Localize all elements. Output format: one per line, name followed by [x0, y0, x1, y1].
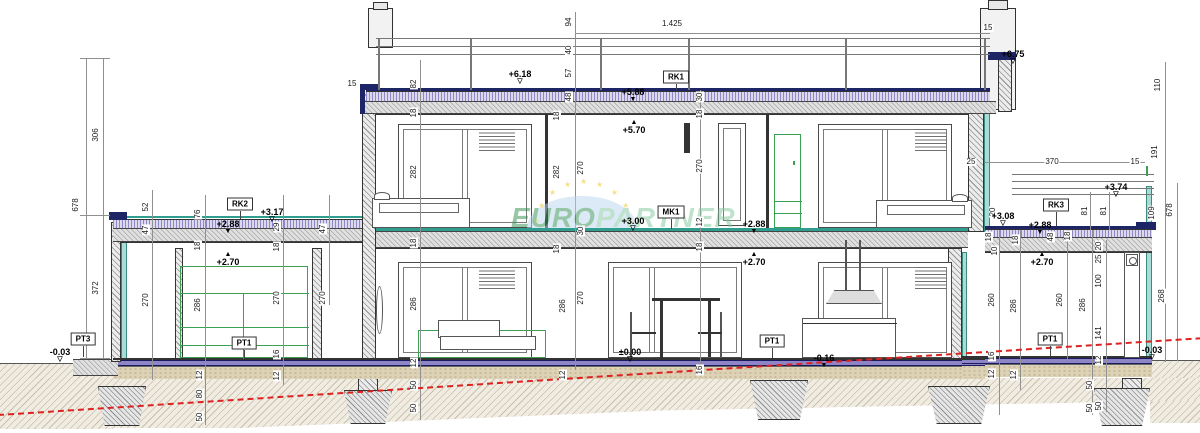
level-mark: ▲+2.70 — [1031, 252, 1054, 267]
dimension-label: 286 — [410, 296, 418, 311]
level-marker-icon: ▼ — [743, 229, 766, 235]
level-marker-icon: ▼ — [622, 97, 645, 103]
reference-box-rk2: RK2 — [227, 198, 253, 211]
dimension-label: 50 — [410, 380, 418, 391]
dimension-label: 47 — [319, 224, 327, 235]
dimension-label: 678 — [72, 197, 80, 212]
level-mark: +2.88▼ — [743, 220, 766, 235]
dimension-label: 82 — [410, 79, 418, 90]
reference-box-pt3: PT3 — [71, 333, 96, 346]
dimension-label: 282 — [553, 164, 561, 179]
dimension-label: 50 — [1095, 401, 1103, 412]
dimension-label: 16 — [696, 365, 704, 376]
dimension-label: 270 — [577, 290, 585, 305]
reference-box-pt1: PT1 — [760, 335, 785, 348]
dimension-label: 16 — [988, 351, 996, 362]
dimension-label: 15 — [983, 24, 994, 32]
dimension-label: 18 — [696, 242, 704, 253]
dimension-label: 110 — [1154, 78, 1162, 93]
dimension-label: 29 — [273, 222, 281, 233]
leader-line — [676, 84, 677, 90]
dimension-label: 286 — [194, 297, 202, 312]
dimension-label: 16 — [273, 349, 281, 360]
dimension-label: 18 — [273, 242, 281, 253]
dimension-label: 100 — [1095, 273, 1103, 288]
dimension-label: 18 — [553, 111, 561, 122]
level-marker-icon: ▽ — [622, 226, 645, 232]
dimension-label: 52 — [142, 202, 150, 213]
leader-line — [83, 346, 84, 357]
dimension-label: 18 — [1012, 235, 1020, 246]
dimension-label: 306 — [92, 127, 100, 142]
level-mark: +6.18▽ — [509, 70, 532, 85]
level-mark: ▲+5.70 — [623, 120, 646, 135]
dimension-label: 270 — [696, 158, 704, 173]
level-marker-icon: ▽ — [992, 221, 1015, 227]
dimension-label: 40 — [565, 45, 573, 56]
dimension-label: 286 — [559, 298, 567, 313]
leader-line — [1056, 212, 1057, 226]
level-mark: ▲+2.70 — [217, 252, 240, 267]
level-marker-icon: ▼ — [1029, 230, 1052, 236]
level-mark: +6.75▽ — [1002, 50, 1025, 65]
dimension-label: 76 — [194, 209, 202, 220]
dimension-label: 141 — [1095, 325, 1103, 340]
level-marker-icon: ▽ — [1105, 192, 1128, 198]
reference-box-pt1: PT1 — [232, 337, 257, 350]
dimension-label: 25 — [1095, 254, 1103, 265]
dimension-label: 286 — [1010, 298, 1018, 313]
level-marker-icon: ▽ — [619, 357, 641, 363]
dimension-label: 20 — [1095, 241, 1103, 252]
dimension-label: 80 — [196, 389, 204, 400]
dimension-label: 10 — [991, 246, 999, 257]
dimension-label: 12 — [696, 217, 704, 228]
level-mark: -0.03▽ — [50, 348, 71, 363]
level-marker-icon: ▽ — [509, 79, 532, 85]
dimension-label: 109 — [1148, 205, 1156, 220]
cross-section-drawing: ★ ★ ★ ★ ★ ★ ★ ★ ★ EUROPARTNER 6783063725… — [0, 0, 1200, 433]
level-mark: +3.08▽ — [992, 212, 1015, 227]
dimension-label: 12 — [1010, 370, 1018, 381]
dimension-label: 270 — [273, 290, 281, 305]
dimension-label: 12 — [1095, 355, 1103, 366]
level-mark: ±0.00▽ — [619, 348, 641, 363]
dimension-label: 12 — [559, 370, 567, 381]
level-marker-icon: ▽ — [1002, 59, 1025, 65]
dimension-label: 47 — [142, 225, 150, 236]
dimension-label: 81 — [1100, 206, 1108, 217]
level-mark: -0.16▼ — [814, 354, 835, 369]
dimension-label: 370 — [1044, 158, 1059, 166]
dimension-label: 1.425 — [661, 20, 683, 28]
dimension-label: 268 — [1158, 288, 1166, 303]
level-marker-icon: ▽ — [50, 357, 71, 363]
level-mark: +5.88▼ — [622, 88, 645, 103]
dimension-label: 15 — [1130, 158, 1141, 166]
dimension-label: 50 — [1086, 380, 1094, 391]
reference-box-rk1: RK1 — [663, 71, 689, 84]
dimension-label: 94 — [565, 17, 573, 28]
reference-box-mk1: MK1 — [658, 206, 685, 219]
dimension-label: 25 — [966, 158, 977, 166]
dimension-label: 18 — [410, 108, 418, 119]
dimension-label: 48 — [565, 92, 573, 103]
dimension-label: 15 — [347, 80, 358, 88]
dimension-label: 18 — [696, 109, 704, 120]
dimension-label: 50 — [410, 403, 418, 414]
leader-line — [244, 350, 245, 358]
dimension-label: 12 — [988, 369, 996, 380]
dimension-label: 30 — [577, 226, 585, 237]
dimension-label: 282 — [410, 164, 418, 179]
dimension-label: 12 — [196, 370, 204, 381]
level-mark: +3.74▽ — [1105, 183, 1128, 198]
level-marker-icon: ▽ — [1142, 355, 1163, 361]
dimension-label: 50 — [1086, 403, 1094, 414]
level-marker-icon: ▼ — [814, 363, 835, 369]
level-marker-icon: ▽ — [261, 217, 284, 223]
leader-line — [240, 211, 241, 219]
dimension-label: 12 — [273, 371, 281, 382]
reference-box-rk3: RK3 — [1043, 199, 1069, 212]
dimension-label: 372 — [92, 280, 100, 295]
level-mark: +3.00▽ — [622, 217, 645, 232]
dimension-label: 30 — [696, 92, 704, 103]
dimension-label: 18 — [553, 244, 561, 255]
dimension-label: 12 — [410, 358, 418, 369]
leader-line — [772, 348, 773, 358]
dimension-label: 18 — [985, 232, 993, 243]
level-mark: -0.03▽ — [1142, 346, 1163, 361]
level-mark: +3.17▽ — [261, 208, 284, 223]
dimension-label: 50 — [196, 412, 204, 423]
leader-line — [671, 219, 672, 229]
dimension-label: 260 — [1056, 292, 1064, 307]
dimension-label: 260 — [988, 292, 996, 307]
level-mark: +2.88▼ — [1029, 221, 1052, 236]
dimension-label: 18 — [410, 238, 418, 249]
dimension-label: 270 — [577, 160, 585, 175]
level-mark: +2.88▼ — [217, 220, 240, 235]
leader-line — [1050, 346, 1051, 356]
dimension-label: 678 — [1166, 202, 1174, 217]
reference-box-pt1: PT1 — [1038, 333, 1063, 346]
level-mark: ▲+2.70 — [743, 252, 766, 267]
dimension-label: 191 — [1151, 144, 1159, 159]
dimension-label: 270 — [319, 290, 327, 305]
dimension-label: 18 — [194, 241, 202, 252]
dimension-label: 57 — [565, 68, 573, 79]
dimension-label: 81 — [1081, 206, 1089, 217]
level-marker-icon: ▼ — [217, 229, 240, 235]
dimension-label: 270 — [142, 292, 150, 307]
dimension-label: 18 — [1064, 231, 1072, 242]
dimension-label: 286 — [1079, 297, 1087, 312]
